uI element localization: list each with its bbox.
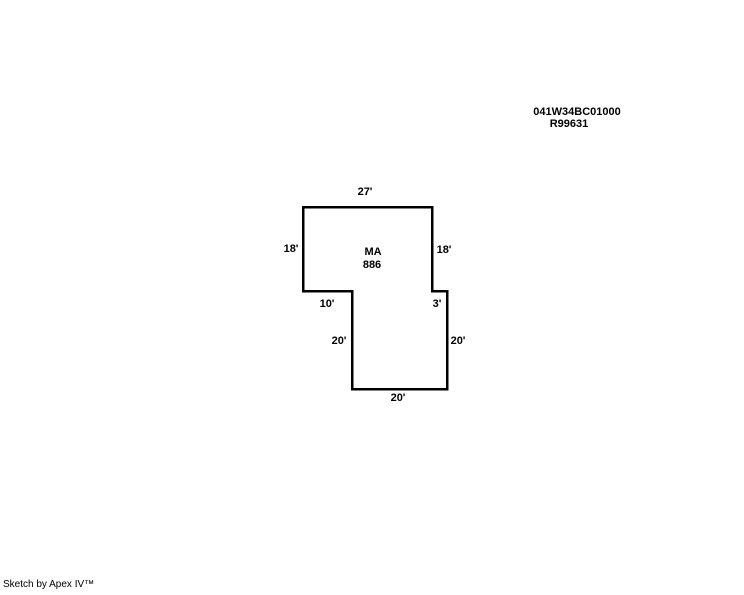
dimension-label-top: 27' [358, 186, 373, 198]
dimension-label-step-bottom-left: 10' [320, 298, 335, 310]
area-code-label: MA [364, 246, 381, 258]
building-outline-canvas [0, 0, 744, 595]
dimension-label-right-lower: 20' [451, 335, 466, 347]
property-sketch-page: 041W34BC01000 R99631 MA 886 27'18'18'10'… [0, 0, 744, 595]
dimension-label-step-bottom-right: 3' [433, 298, 442, 310]
dimension-label-left-upper: 18' [284, 243, 299, 255]
dimension-label-left-lower: 20' [332, 335, 347, 347]
area-size-label: 886 [363, 259, 381, 271]
dimension-label-bottom: 20' [391, 392, 406, 404]
dimension-label-right-upper: 18' [437, 244, 452, 256]
apex-credit-text: Sketch by Apex IV™ [3, 579, 94, 590]
